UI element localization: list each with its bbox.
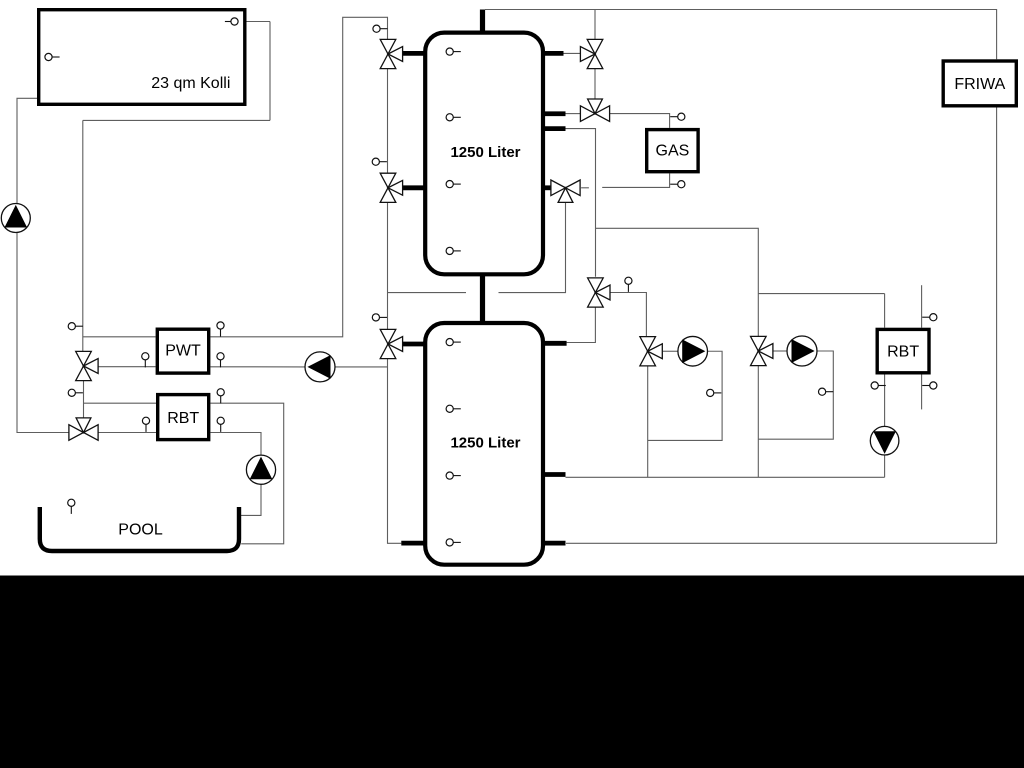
svg-text:POOL: POOL	[118, 522, 163, 539]
svg-text:23 qm Kolli: 23 qm Kolli	[151, 75, 230, 92]
svg-text:RBT: RBT	[887, 344, 919, 361]
svg-text:PWT: PWT	[165, 342, 201, 359]
svg-text:1250 Liter: 1250 Liter	[450, 144, 520, 161]
svg-text:GAS: GAS	[656, 142, 690, 159]
svg-text:FRIWA: FRIWA	[954, 76, 1005, 93]
svg-text:1250 Liter: 1250 Liter	[450, 435, 520, 452]
svg-text:RBT: RBT	[167, 410, 199, 427]
